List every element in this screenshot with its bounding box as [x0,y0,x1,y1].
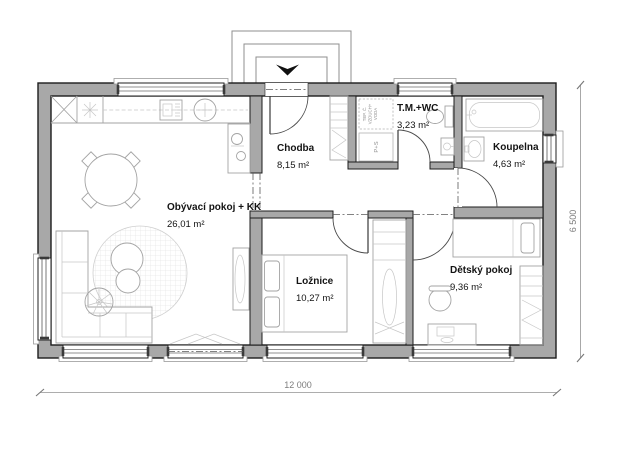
heat-pump-unit: TEP. Č. VZDUCH+ VODA [359,99,393,129]
rug [93,226,187,320]
kids-room-name: Dětský pokoj [450,265,512,276]
tech-wc-name: T.M.+WC [397,103,438,114]
tv-unit [233,248,249,310]
bedroom-name: Ložnice [296,276,334,287]
window-kitchen [114,79,228,97]
bathroom-area: 4,63 m² [493,159,525,170]
tech-washbasin [441,138,454,155]
kids-room-area: 9,36 m² [450,282,482,293]
living-room-name: Obývací pokoj + KK [167,202,262,213]
window-bathroom [543,131,563,167]
living-room-area: 26,01 m² [167,219,205,230]
bedroom-area: 10,27 m² [296,293,334,304]
tech-wc-area: 3,23 m² [397,120,429,131]
entrance-porch [232,31,351,83]
washer-dryer-unit: P+S [359,133,393,161]
washer-dryer-label: P+S [374,141,380,152]
floor-plan: TEP. Č. VZDUCH+ VODA P+S [0,0,640,453]
heat-pump-label-2: VZDUCH+ [368,103,373,124]
dimension-width-label: 12 000 [284,380,312,390]
dimension-height: 6 500 [568,81,584,362]
hall-area: 8,15 m² [277,160,309,171]
desk-chair [429,286,451,311]
window-bedroom [263,345,367,362]
heat-pump-label-1: TEP. Č. [362,107,367,122]
window-living [59,345,152,362]
heat-pump-label-3: VODA [373,108,378,120]
hall-name: Chodba [277,143,315,154]
dining-table [82,152,140,208]
dimension-height-label: 6 500 [568,210,578,233]
bathroom-washbasin [464,137,484,161]
window-tech [394,79,456,97]
window-living-left [34,254,52,344]
entrance-arrow-icon [276,65,299,76]
window-kids [409,345,514,362]
dimension-width: 12 000 [36,380,561,396]
single-bed [453,219,540,257]
bathroom-name: Koupelna [493,142,539,153]
